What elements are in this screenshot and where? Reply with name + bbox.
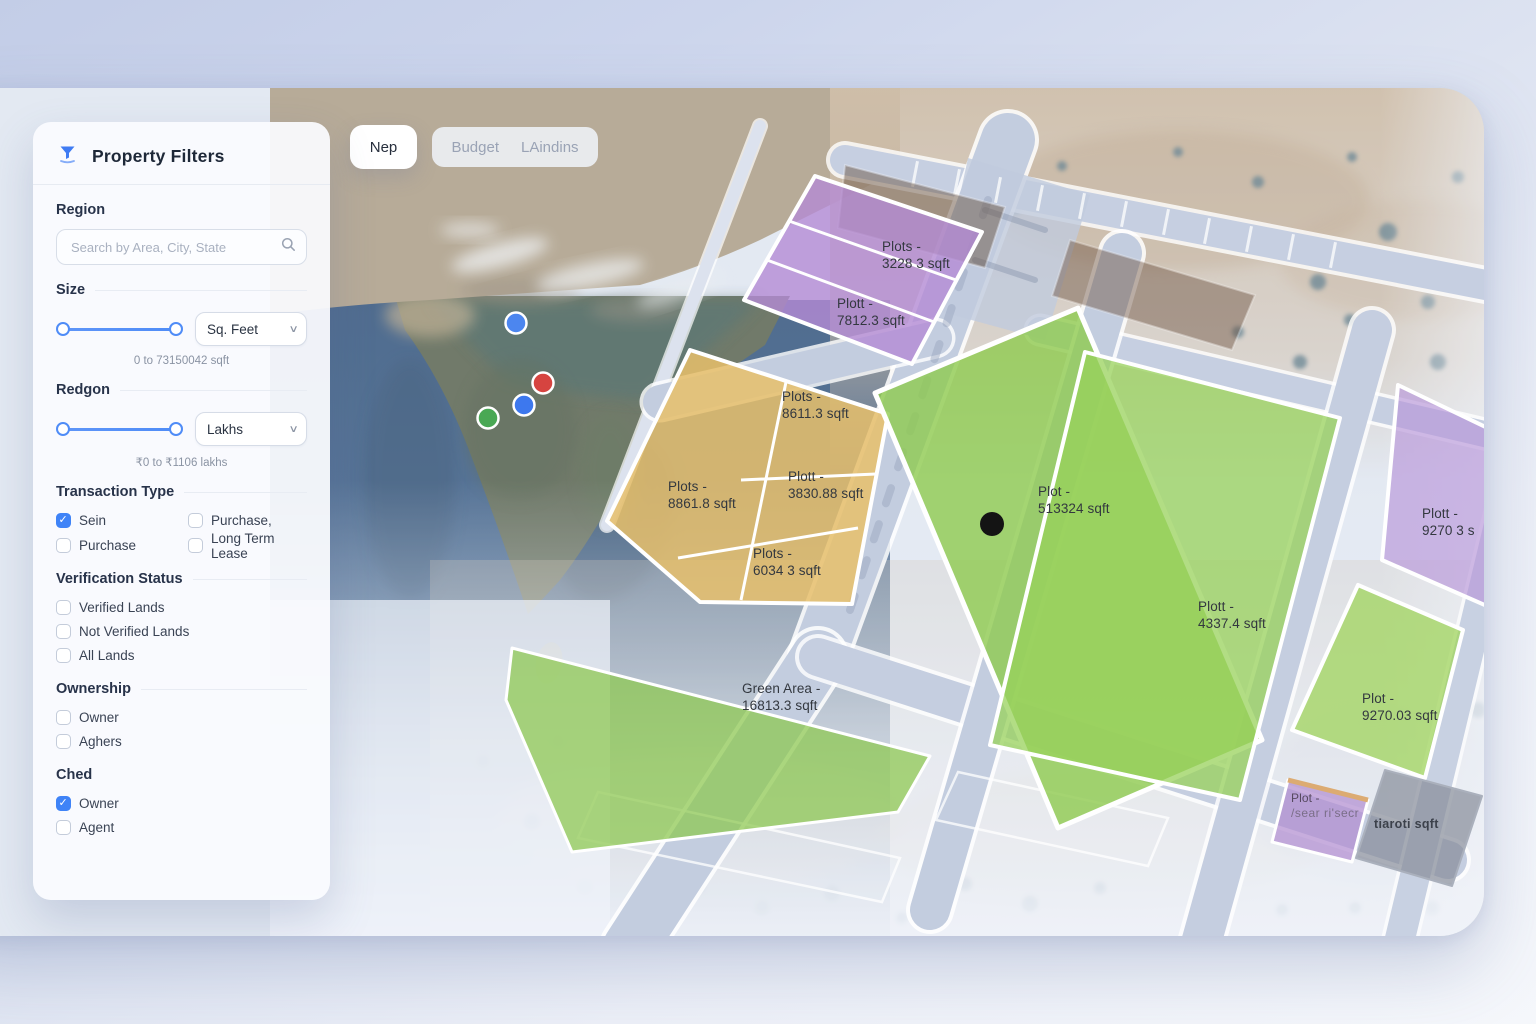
budget-unit-select[interactable]: Lakhs ∨ xyxy=(195,412,307,446)
map-marker-blue[interactable] xyxy=(514,395,535,416)
tab-budget[interactable]: Budget xyxy=(451,139,499,156)
transaction-type-heading: Transaction Type xyxy=(56,484,174,500)
size-slider-min-handle[interactable] xyxy=(56,322,70,336)
checkbox-icon[interactable] xyxy=(56,538,71,553)
size-heading: Size xyxy=(56,282,85,298)
checkbox-icon[interactable] xyxy=(188,538,203,553)
panel-title: Property Filters xyxy=(92,146,225,167)
chevron-down-icon: ∨ xyxy=(288,424,298,435)
checkbox-purchase-comma[interactable]: Purchase, xyxy=(188,511,307,530)
map-marker-green[interactable] xyxy=(478,408,499,429)
checkbox-ched-owner[interactable]: Owner xyxy=(56,794,307,813)
budget-slider[interactable] xyxy=(56,421,183,437)
map-window: Plots -3228 3 sqft Plott -7812.3 sqft Pl… xyxy=(0,88,1484,936)
checkbox-purchase[interactable]: Purchase xyxy=(56,536,188,555)
region-search-input[interactable] xyxy=(69,239,281,256)
map-marker-red[interactable] xyxy=(533,373,554,394)
property-filters-panel: Property Filters Region Size Sq. Fe xyxy=(33,122,330,900)
slider-track xyxy=(63,328,176,332)
size-slider-max-handle[interactable] xyxy=(169,322,183,336)
budget-heading: Redgon xyxy=(56,382,110,398)
selected-plot-dot[interactable] xyxy=(980,512,1004,536)
checkbox-all-lands[interactable]: All Lands xyxy=(56,646,307,665)
tab-group: Budget LAindins xyxy=(432,127,598,167)
size-range-caption: 0 to 73150042 sqft xyxy=(56,355,307,367)
chevron-down-icon: ∨ xyxy=(288,324,298,335)
checkbox-aghers[interactable]: Aghers xyxy=(56,732,307,751)
ched-heading: Ched xyxy=(56,767,92,783)
budget-slider-min-handle[interactable] xyxy=(56,422,70,436)
ownership-heading: Ownership xyxy=(56,681,131,697)
budget-range-caption: ₹0 to ₹1106 lakhs xyxy=(56,455,307,469)
region-heading: Region xyxy=(56,202,105,218)
checkbox-not-verified-lands[interactable]: Not Verified Lands xyxy=(56,622,307,641)
region-search xyxy=(56,229,307,265)
checkbox-icon[interactable] xyxy=(188,513,203,528)
checkbox-icon[interactable] xyxy=(56,600,71,615)
checkbox-verified-lands[interactable]: Verified Lands xyxy=(56,598,307,617)
panel-header: Property Filters xyxy=(33,122,330,185)
checkbox-owner[interactable]: Owner xyxy=(56,708,307,727)
checkbox-sein[interactable]: Sein xyxy=(56,511,188,530)
checkbox-long-term-lease[interactable]: Long Term Lease xyxy=(188,536,307,555)
checkbox-icon[interactable] xyxy=(56,624,71,639)
budget-slider-max-handle[interactable] xyxy=(169,422,183,436)
checkbox-icon[interactable] xyxy=(56,513,71,528)
checkbox-icon[interactable] xyxy=(56,796,71,811)
checkbox-icon[interactable] xyxy=(56,820,71,835)
checkbox-icon[interactable] xyxy=(56,710,71,725)
checkbox-icon[interactable] xyxy=(56,734,71,749)
search-icon xyxy=(281,237,296,257)
tab-landings[interactable]: LAindins xyxy=(521,139,579,156)
slider-track xyxy=(63,428,176,432)
filter-icon xyxy=(57,143,78,169)
size-slider[interactable] xyxy=(56,321,183,337)
verification-status-heading: Verification Status xyxy=(56,571,183,587)
size-unit-select[interactable]: Sq. Feet ∨ xyxy=(195,312,307,346)
checkbox-ched-agent[interactable]: Agent xyxy=(56,818,307,837)
checkbox-icon[interactable] xyxy=(56,648,71,663)
map-marker-blue[interactable] xyxy=(506,313,527,334)
tab-map[interactable]: Nep xyxy=(350,125,417,169)
